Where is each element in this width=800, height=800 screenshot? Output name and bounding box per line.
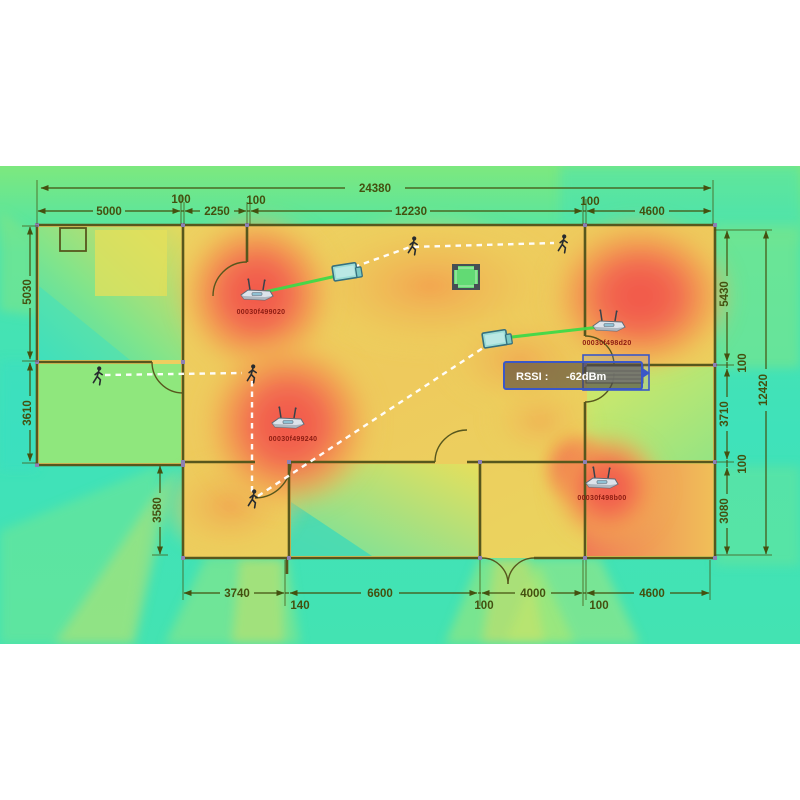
rssi-tooltip: RSSI : -62dBm [504, 362, 650, 389]
dimension-label: 100 [737, 353, 749, 372]
dimension-label: 140 [290, 600, 309, 612]
heatmap-area: 24380 5000 100 2250 100 12230 100 4600 5… [0, 166, 800, 644]
dimension-label: 100 [580, 196, 599, 208]
dimension-label: 100 [737, 454, 749, 473]
dimension-label: 3080 [719, 498, 731, 524]
access-point-label: 00030f499240 [269, 436, 318, 443]
dimension-label: 4000 [520, 588, 546, 600]
table-object[interactable] [452, 264, 480, 290]
dimension-label: 100 [474, 600, 493, 612]
dimension-label: 6600 [367, 588, 393, 600]
dimension-label: 24380 [359, 183, 391, 195]
dimension-label: 3610 [22, 400, 34, 426]
access-point-label: 00030f498b00 [577, 495, 626, 502]
dimension-label: 5000 [96, 206, 122, 218]
dimension-label: 4600 [639, 206, 665, 218]
access-point-label: 00030f498d20 [582, 340, 631, 347]
dimension-label: 3710 [719, 401, 731, 427]
signal-heatmap [0, 166, 800, 644]
dimension-label: 100 [589, 600, 608, 612]
rssi-label: RSSI : [516, 371, 548, 383]
dimension-label: 5030 [22, 279, 34, 305]
dimension-label: 12420 [758, 374, 770, 406]
dimension-label: 100 [171, 194, 190, 206]
page: 24380 5000 100 2250 100 12230 100 4600 5… [0, 0, 800, 800]
rssi-value: -62dBm [566, 371, 607, 383]
access-point-label: 00030f499020 [237, 309, 286, 316]
dimension-label: 3580 [152, 497, 164, 523]
dimension-label: 4600 [639, 588, 665, 600]
dimension-label: 100 [246, 195, 265, 207]
dimension-label: 2250 [204, 206, 230, 218]
dimension-label: 12230 [395, 206, 427, 218]
dimension-label: 3740 [224, 588, 250, 600]
dimension-label: 5430 [719, 281, 731, 307]
floorplan-svg: 24380 5000 100 2250 100 12230 100 4600 5… [0, 166, 800, 644]
